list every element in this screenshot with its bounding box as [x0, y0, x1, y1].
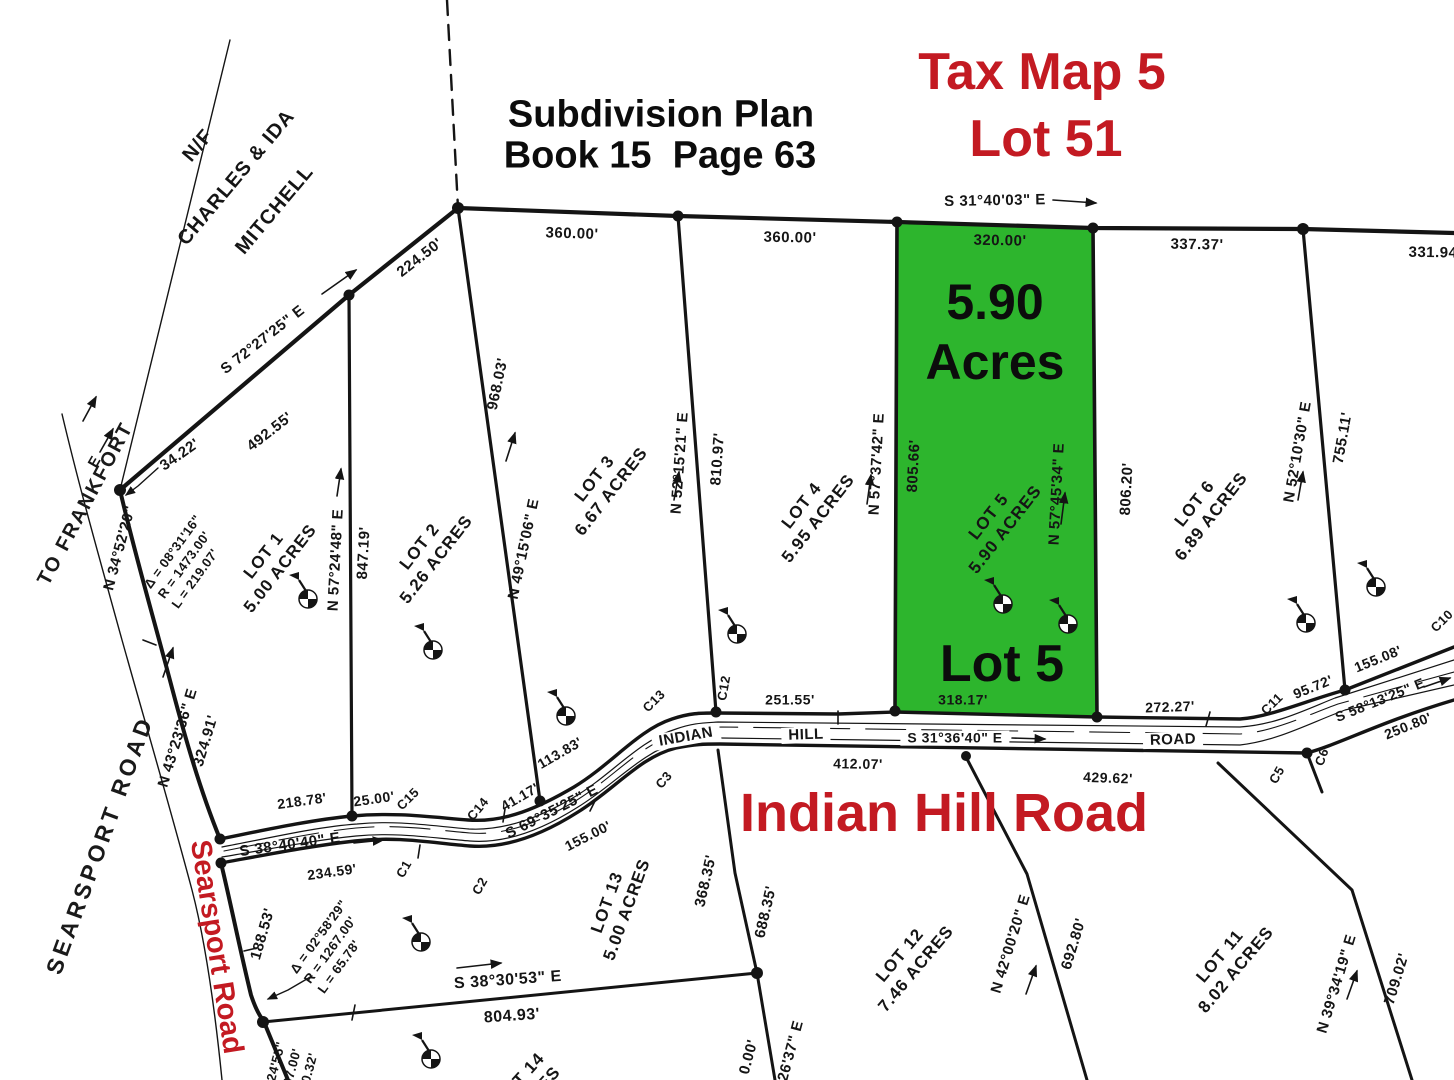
searsport-west-edge — [62, 414, 222, 1080]
bearing-arrows — [83, 200, 1450, 999]
lot11-east-line — [1218, 763, 1412, 1080]
searsport-east-edge-upper — [120, 490, 220, 839]
boundary-stub-c6 — [1307, 753, 1322, 792]
indian-hill-centerline — [224, 672, 1454, 851]
searsport-east-edge-lower — [221, 863, 288, 1080]
plat-linework — [0, 0, 1454, 1080]
boundary-monument-dots — [114, 202, 1351, 1028]
leader-lines — [126, 468, 312, 999]
highlighted-lot5-parcel[interactable] — [895, 224, 1097, 716]
searsport-east-edge-north — [120, 40, 230, 490]
well-symbols — [289, 560, 1385, 1068]
west-boundary-line — [120, 208, 458, 490]
lot14-north-line — [263, 973, 757, 1022]
lot2-lot3-line — [458, 208, 540, 801]
dashed-tie-line — [447, 0, 458, 208]
lot4-lot5-line — [895, 222, 897, 711]
plat-map: Subdivision Plan Book 15 Page 63 Tax Map… — [0, 0, 1454, 1080]
lot12-lot11-line — [966, 757, 1087, 1080]
lot1-lot2-line — [349, 295, 352, 816]
lot3-lot4-line — [678, 216, 716, 712]
lot13-lot12-line — [718, 750, 775, 1080]
